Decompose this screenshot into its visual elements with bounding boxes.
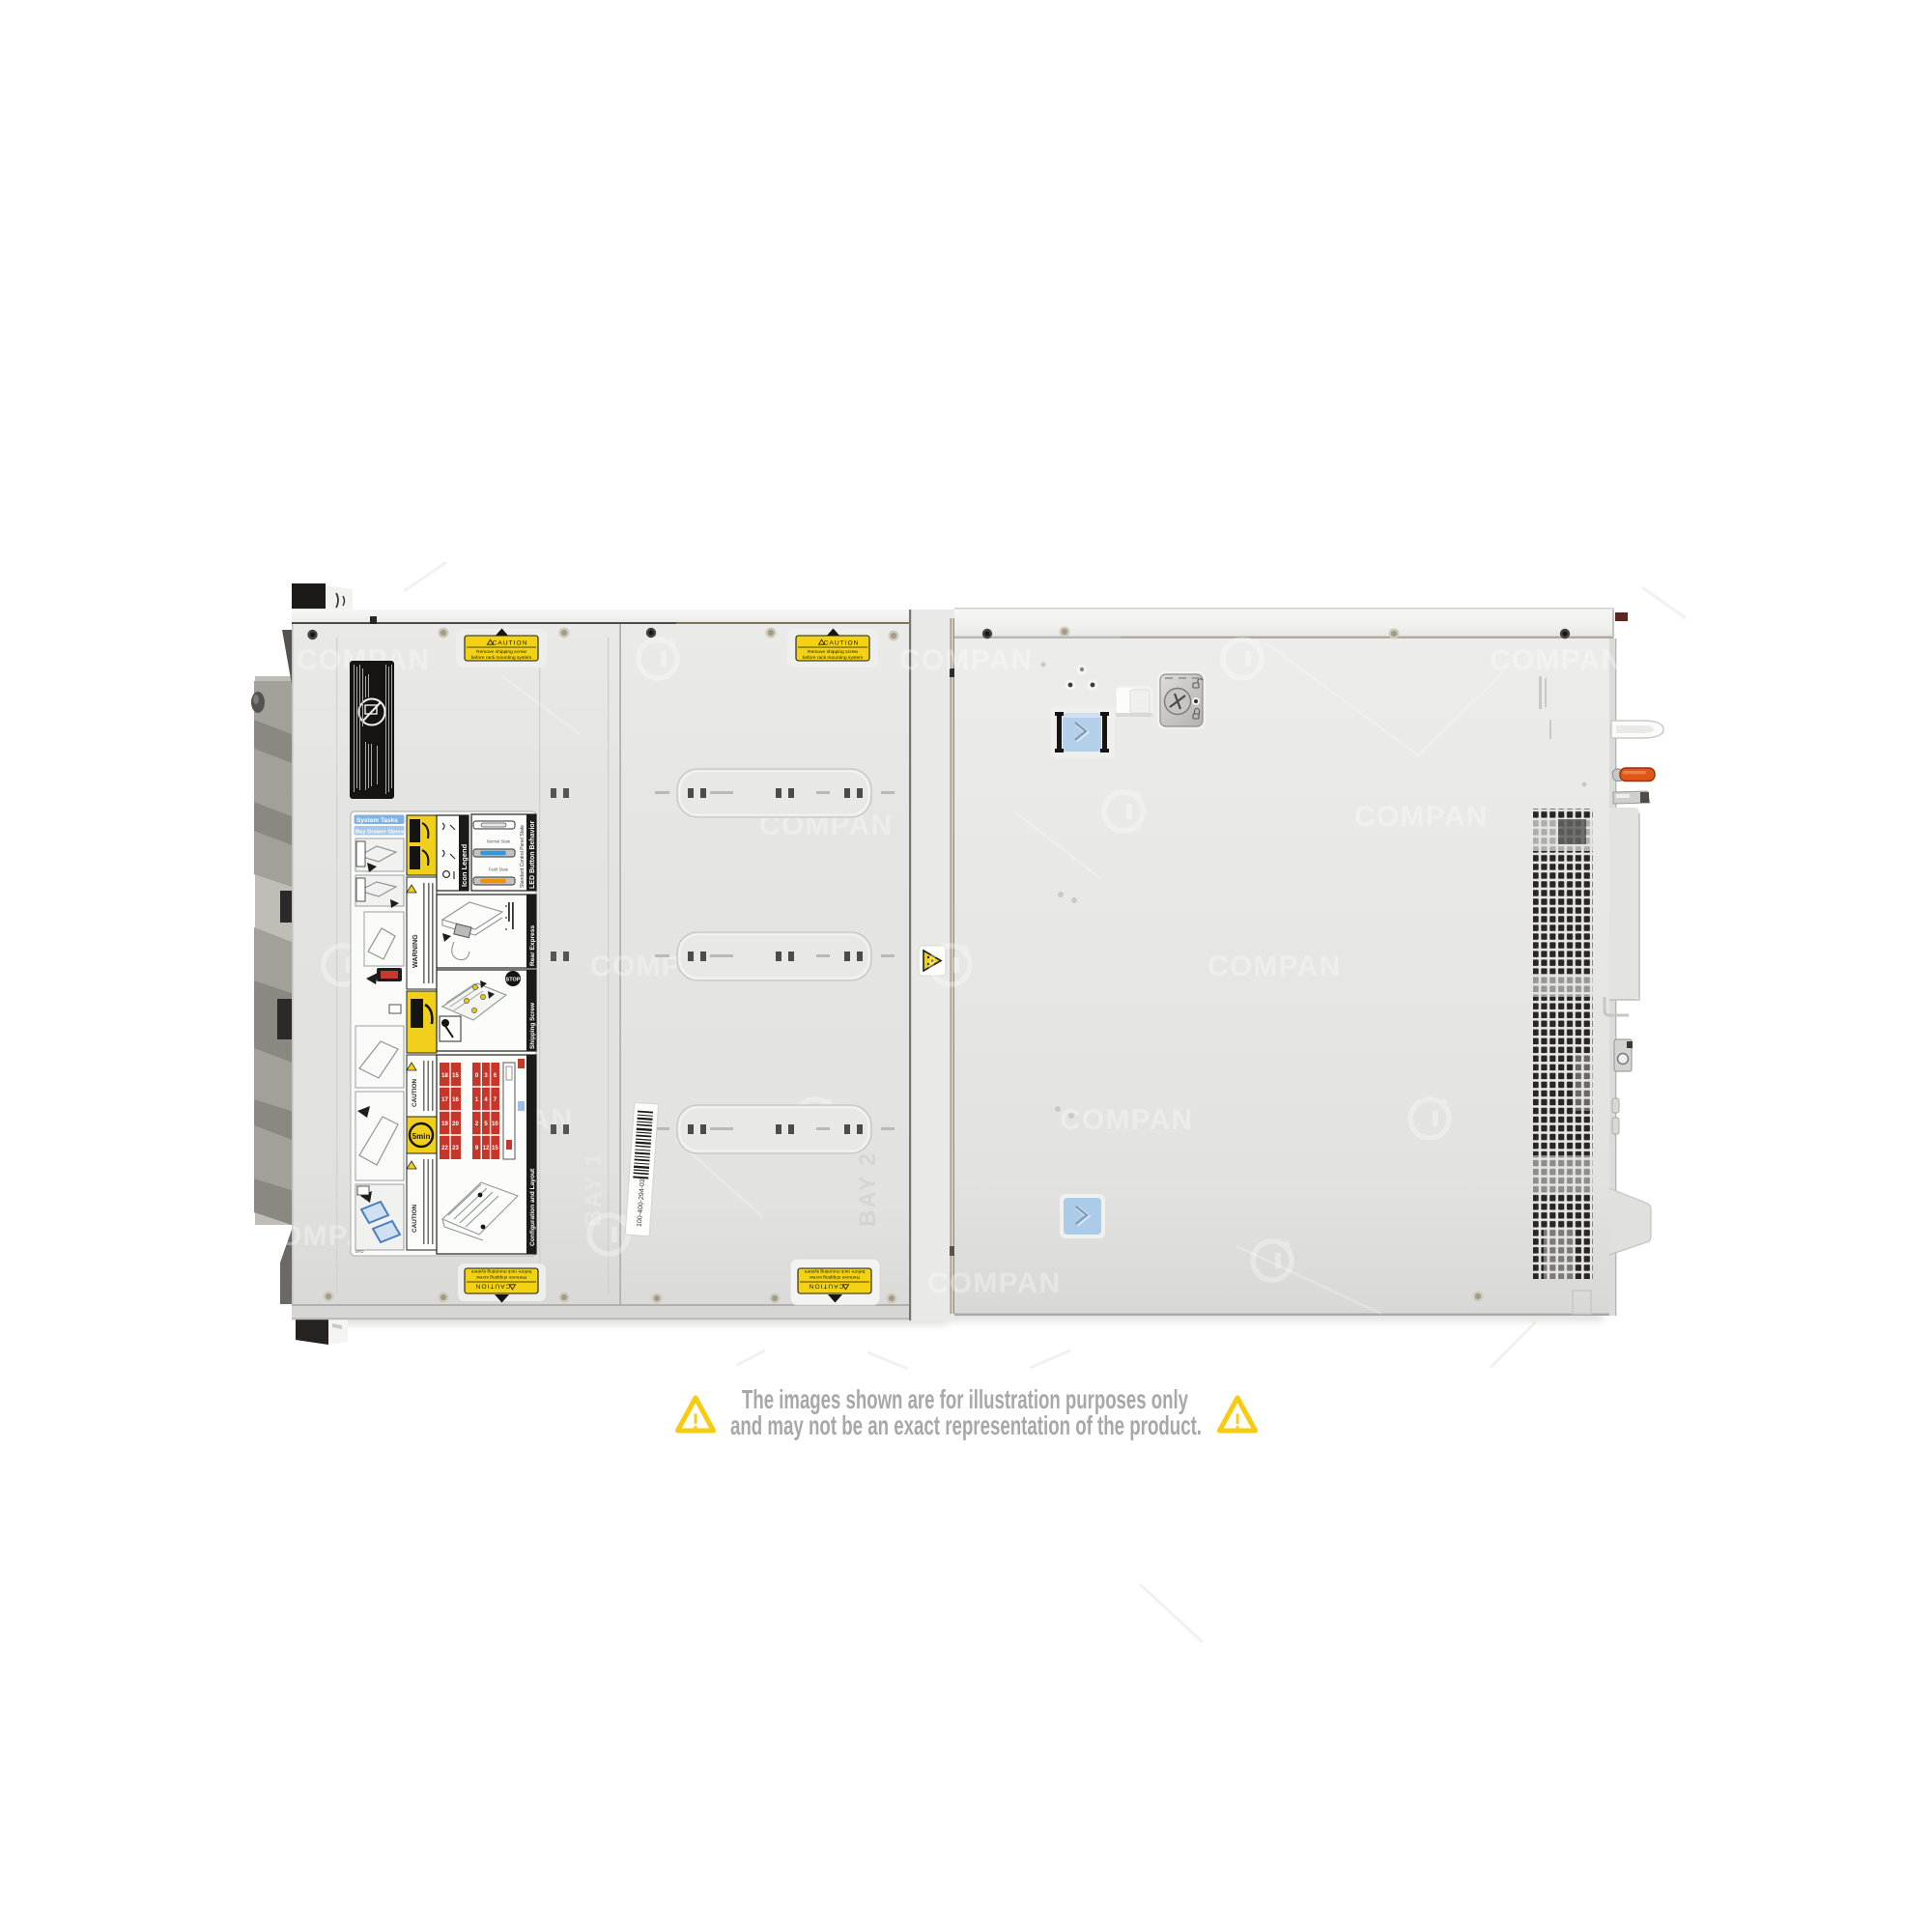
svg-text:System Tasks: System Tasks [356,817,398,824]
svg-text:15: 15 [452,1073,459,1079]
svg-text:Icon Legend: Icon Legend [460,843,469,887]
svg-text:and may not be an exact repres: and may not be an exact representation o… [730,1410,1202,1440]
svg-text:!: ! [1234,1409,1240,1434]
svg-text:!: ! [692,1409,698,1434]
svg-text:Shipping Screw: Shipping Screw [529,1003,536,1049]
svg-text:Rear Express: Rear Express [529,925,536,966]
svg-text:12: 12 [483,1146,490,1151]
svg-text:19: 19 [441,1122,448,1127]
svg-text:5min: 5min [412,1132,431,1141]
svg-text:Bay Drawer Operation: Bay Drawer Operation [355,830,414,836]
svg-text:17: 17 [441,1097,448,1103]
svg-text:LED Button Behavior: LED Button Behavior [529,820,536,889]
svg-text:WARNING: WARNING [411,934,419,968]
svg-text:10: 10 [492,1122,498,1127]
svg-text:23: 23 [452,1146,459,1151]
svg-text:18: 18 [441,1073,448,1079]
svg-text:BAY 1: BAY 1 [581,1151,607,1227]
svg-text:Standard Control Panel State: Standard Control Panel State [520,825,526,888]
svg-text:STOP: STOP [506,978,521,983]
svg-text:Configuration and Layout: Configuration and Layout [529,1168,536,1246]
svg-text:22: 22 [441,1146,448,1151]
svg-text:16: 16 [452,1097,459,1103]
svg-text:CAUTION: CAUTION [412,1205,418,1233]
svg-text:15: 15 [492,1146,498,1151]
svg-text:Fault State: Fault State [489,867,509,872]
svg-text:BAY 2: BAY 2 [855,1151,881,1227]
svg-text:20: 20 [452,1122,459,1127]
svg-text:Normal State: Normal State [487,839,511,844]
svg-text:0FD: 0FD [355,1249,364,1254]
svg-text:CAUTION: CAUTION [412,1079,418,1107]
